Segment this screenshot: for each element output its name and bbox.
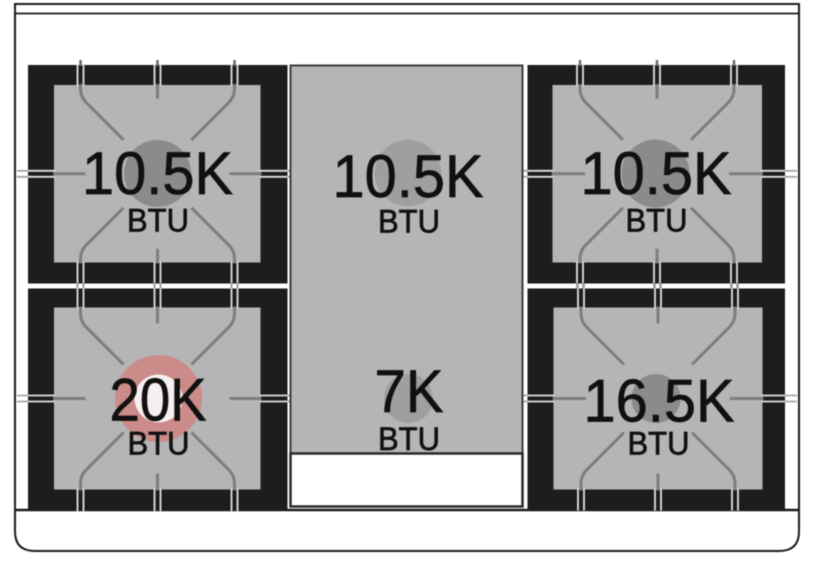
svg-text:BTU: BTU [628,426,690,462]
svg-text:20K: 20K [110,367,207,434]
svg-text:10.5K: 10.5K [581,140,732,207]
svg-text:7K: 7K [375,358,444,425]
svg-text:BTU: BTU [127,203,189,239]
svg-text:BTU: BTU [378,204,440,240]
svg-text:BTU: BTU [378,421,440,457]
svg-text:BTU: BTU [128,426,190,462]
svg-text:16.5K: 16.5K [584,368,735,435]
svg-text:10.5K: 10.5K [333,143,484,210]
svg-text:BTU: BTU [626,203,688,239]
svg-text:10.5K: 10.5K [82,140,233,207]
